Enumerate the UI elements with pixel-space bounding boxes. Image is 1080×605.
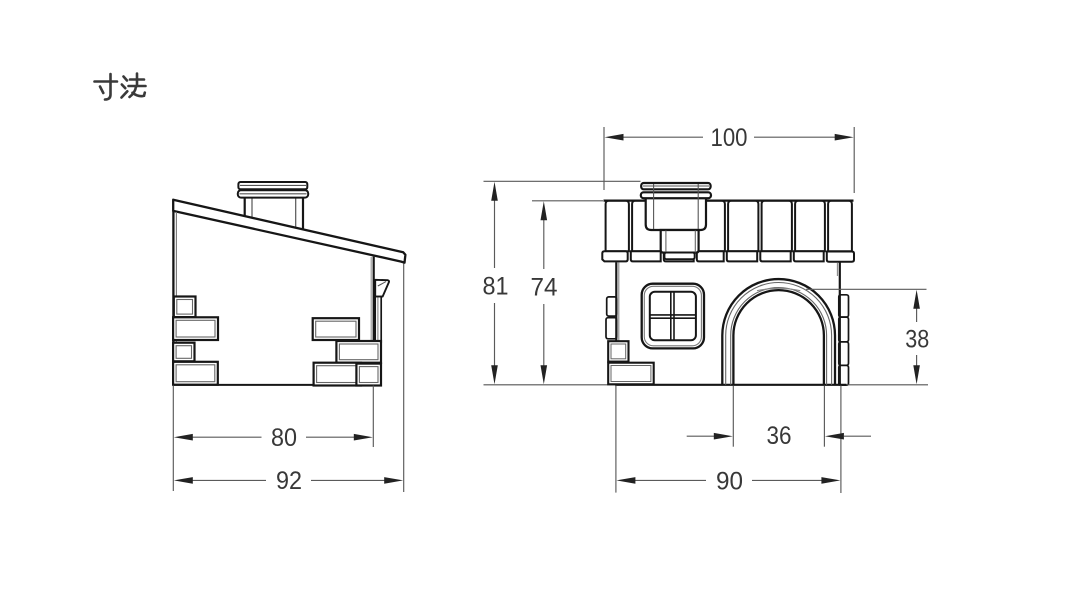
svg-text:92: 92 — [276, 467, 302, 495]
svg-text:36: 36 — [767, 422, 792, 450]
svg-text:80: 80 — [271, 424, 297, 452]
svg-text:81: 81 — [483, 273, 509, 301]
svg-text:74: 74 — [531, 274, 558, 302]
svg-text:100: 100 — [711, 124, 748, 152]
svg-text:90: 90 — [716, 468, 743, 496]
svg-text:38: 38 — [905, 326, 929, 354]
